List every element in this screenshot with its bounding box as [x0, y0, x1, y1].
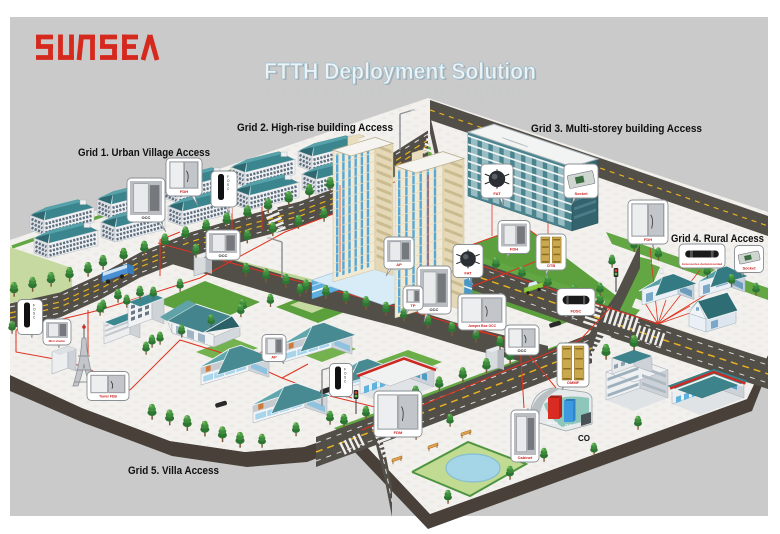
svg-text:OMMF: OMMF: [567, 380, 580, 385]
svg-text:AP: AP: [396, 262, 402, 267]
svg-text:ONU2A: ONU2A: [546, 421, 558, 425]
svg-text:OCC: OCC: [219, 253, 228, 258]
svg-text:OTB: OTB: [547, 263, 556, 268]
svg-text:FDH: FDH: [644, 237, 652, 242]
svg-text:Grid 2. High-rise building Acc: Grid 2. High-rise building Access: [237, 122, 393, 134]
svg-text:Cabinet: Cabinet: [518, 455, 533, 460]
svg-text:Grid 4. Rural Access: Grid 4. Rural Access: [671, 233, 764, 245]
svg-text:Jumper Box OCC: Jumper Box OCC: [468, 324, 497, 328]
svg-text:CO: CO: [578, 434, 590, 443]
svg-text:FDM: FDM: [394, 430, 403, 435]
svg-text:FDSC: FDSC: [571, 309, 582, 314]
svg-text:FAT: FAT: [464, 271, 472, 276]
svg-text:Accessories Aerial-mounted: Accessories Aerial-mounted: [682, 262, 723, 266]
svg-text:OCC: OCC: [142, 215, 151, 220]
svg-text:FDH: FDH: [510, 247, 518, 252]
svg-text:FDH: FDH: [180, 189, 188, 194]
svg-text:Grid 5. Villa Access: Grid 5. Villa Access: [128, 465, 219, 477]
svg-text:AP: AP: [271, 355, 277, 360]
svg-text:FTTH Deployment Solution: FTTH Deployment Solution: [264, 58, 536, 84]
svg-text:Tower FDB: Tower FDB: [99, 395, 117, 399]
svg-text:OLT: OLT: [565, 424, 571, 428]
svg-text:FAT: FAT: [493, 191, 501, 196]
svg-text:TP: TP: [410, 303, 415, 308]
svg-text:OCC: OCC: [518, 348, 527, 353]
svg-text:Socket: Socket: [574, 191, 588, 196]
svg-text:OCC: OCC: [430, 307, 439, 312]
svg-text:Grid 3. Multi-storey building: Grid 3. Multi-storey building Access: [531, 123, 702, 135]
svg-text:Socket: Socket: [742, 266, 756, 271]
svg-text:Grid 1. Urban Village Access: Grid 1. Urban Village Access: [78, 147, 210, 159]
svg-text:Mini shelter: Mini shelter: [49, 339, 67, 343]
